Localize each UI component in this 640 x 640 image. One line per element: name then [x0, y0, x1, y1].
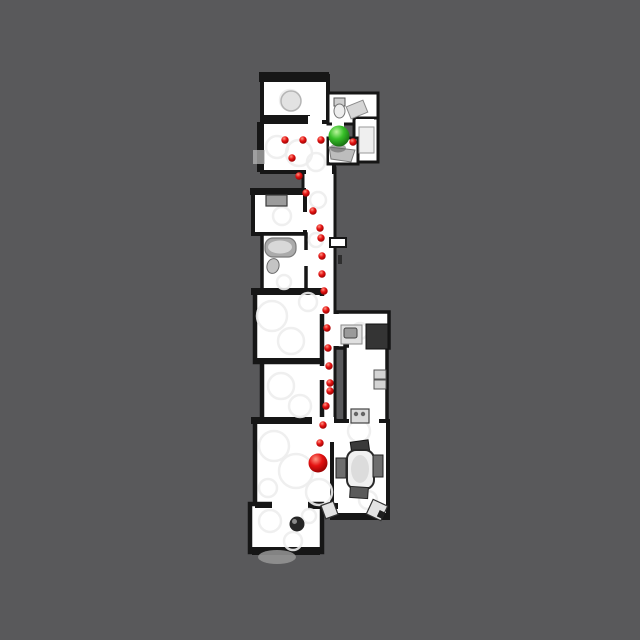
step-shadow-hall-left: [253, 150, 265, 164]
kitchen-dark-unit: [366, 324, 388, 349]
lounge-exterior-shadow: [258, 550, 296, 564]
path-waypoint: [324, 344, 331, 351]
path-waypoint: [299, 136, 306, 143]
door-living-dining: [330, 426, 338, 442]
wall-top-bedroom-top: [259, 72, 329, 82]
wall-top-bedroom-bottom: [264, 115, 310, 123]
door-left-small: [301, 212, 309, 230]
wall-living-top: [251, 417, 315, 424]
ceiling-fan-top-bedroom: [281, 91, 301, 111]
path-waypoint: [317, 234, 324, 241]
dining-chair-right: [373, 455, 383, 477]
room-corridor-stub: [330, 238, 346, 247]
path-waypoint: [309, 207, 316, 214]
path-waypoint: [281, 136, 288, 143]
path-waypoint: [325, 362, 332, 369]
goal-sphere: [329, 126, 350, 147]
plant-lounge: [290, 517, 305, 532]
plant-lounge-highlight: [292, 519, 297, 524]
path-waypoint: [326, 379, 333, 386]
start-sphere: [309, 454, 328, 473]
path-waypoint: [349, 138, 356, 145]
door-bedroom-b: [318, 366, 326, 380]
door-bath-left: [302, 250, 310, 266]
wall-living-lounge: [255, 502, 273, 508]
viewport: [0, 0, 640, 640]
kitchen-sink: [344, 328, 357, 338]
door-annex: [356, 119, 374, 125]
path-waypoint: [318, 252, 325, 259]
bathtub-left-inner: [268, 241, 292, 254]
wall-left-small-top: [250, 188, 306, 195]
floorplan-canvas: [0, 0, 640, 640]
vanity-annex: [359, 127, 374, 153]
dining-chair-bottom: [350, 486, 369, 498]
washer-knob-right: [361, 412, 365, 416]
path-waypoint: [318, 270, 325, 277]
door-corridor-kitchen: [331, 314, 341, 346]
washer: [351, 409, 369, 423]
path-waypoint: [316, 224, 323, 231]
path-waypoint: [302, 189, 309, 196]
toilet-top-bath-bowl: [334, 104, 345, 118]
panel-box-upper: [374, 370, 386, 379]
room-upper-hall: [262, 122, 334, 172]
path-waypoint: [323, 324, 330, 331]
dresser-left-room: [266, 195, 287, 206]
door-living-lounge: [272, 500, 308, 509]
wall-hall-left: [257, 122, 264, 172]
washer-knob-left: [354, 412, 358, 416]
path-waypoint: [326, 387, 333, 394]
path-waypoint: [295, 172, 302, 179]
path-waypoint: [320, 287, 327, 294]
wall-between-bedrooms: [253, 358, 323, 364]
path-waypoint: [316, 439, 323, 446]
door-top-bedroom: [308, 116, 322, 125]
dining-table-shade: [351, 455, 369, 483]
path-waypoint: [317, 136, 324, 143]
path-waypoint: [319, 421, 326, 428]
path-waypoint: [288, 154, 295, 161]
path-waypoint: [322, 402, 329, 409]
wall-door-tick: [338, 255, 342, 264]
panel-box-lower: [374, 380, 386, 389]
dining-chair-left: [336, 458, 346, 478]
path-waypoint: [322, 306, 329, 313]
